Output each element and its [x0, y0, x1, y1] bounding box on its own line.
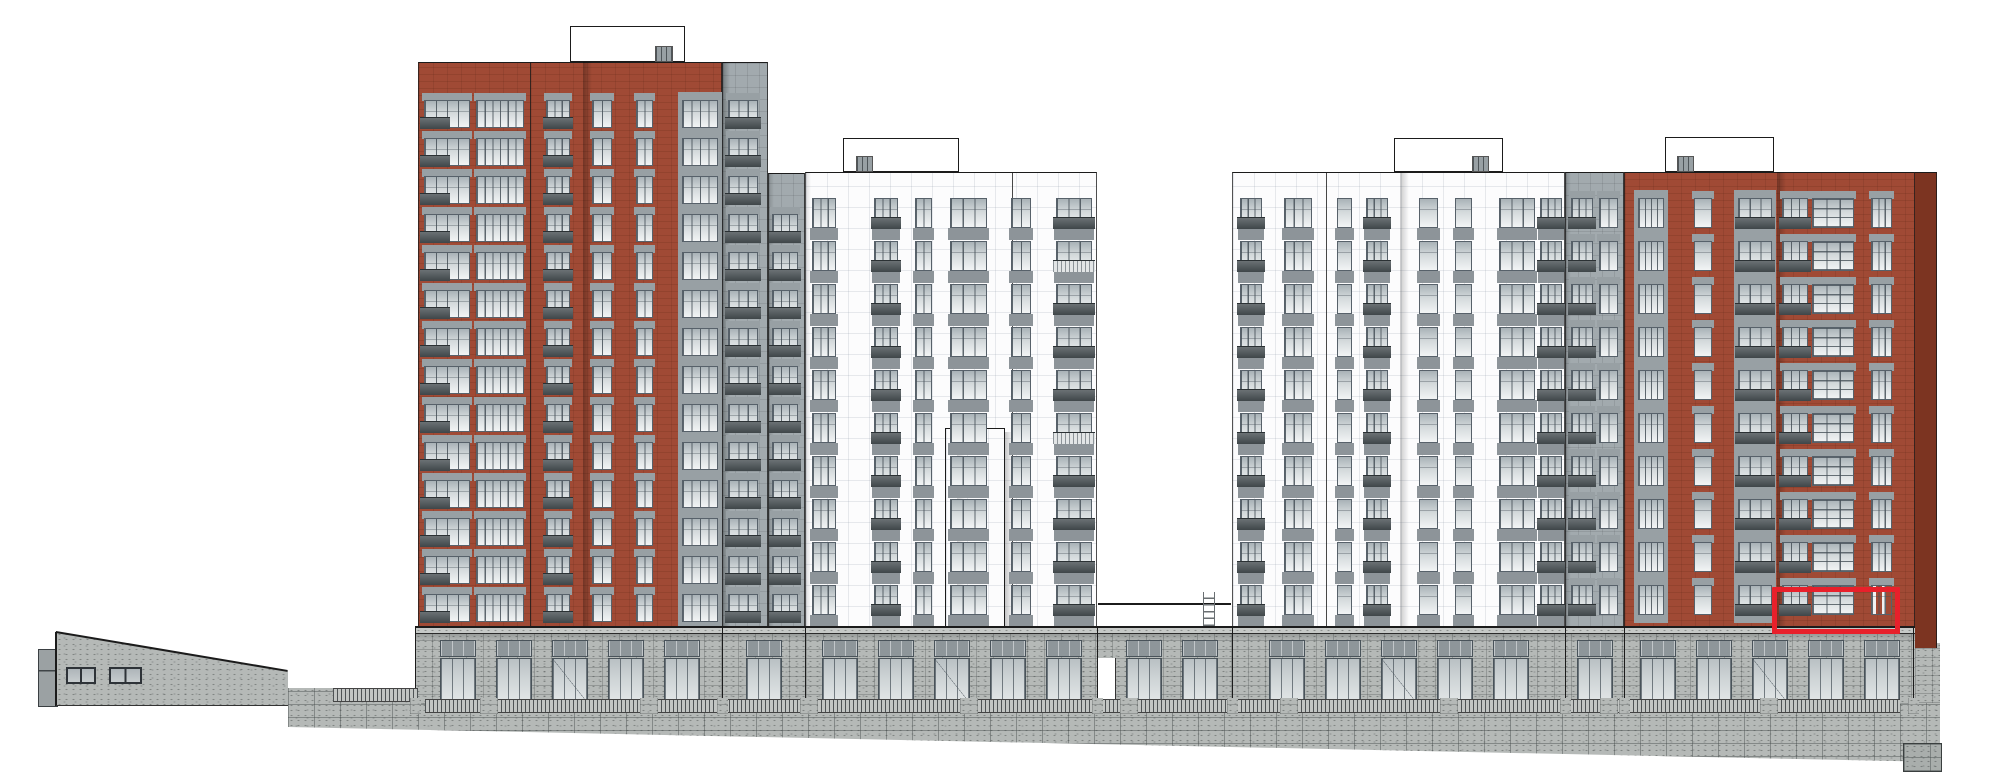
balcony-balustrade — [1537, 518, 1565, 530]
storefront-window[interactable] — [1864, 658, 1900, 703]
apartment-window — [682, 556, 718, 584]
balcony-balustrade — [1779, 217, 1811, 229]
window-spandrel — [948, 572, 989, 584]
window-spandrel — [913, 314, 934, 326]
window-spandrel — [1417, 529, 1440, 541]
apartment-window — [1337, 327, 1352, 357]
balcony-balustrade — [725, 497, 761, 509]
window-spandrel — [1054, 314, 1094, 326]
storefront-clerestory — [1640, 640, 1676, 657]
storefront-clerestory — [1493, 640, 1529, 657]
apartment-window — [476, 442, 524, 470]
railing-pier — [1227, 698, 1238, 714]
balcony-balustrade — [1053, 260, 1095, 272]
apartment-window — [1011, 499, 1031, 529]
apartment-window — [1419, 456, 1438, 486]
podium-boundary-line — [1565, 626, 1566, 704]
apartment-window — [812, 198, 836, 228]
window-spandrel — [1238, 314, 1264, 326]
storefront-window[interactable] — [608, 658, 644, 703]
apartment-window — [476, 404, 524, 432]
railing-pier — [1120, 698, 1138, 714]
storefront-door[interactable] — [934, 658, 970, 703]
balcony-balustrade — [1568, 604, 1596, 616]
balcony-balustrade — [769, 383, 801, 395]
railing-pier — [480, 698, 498, 714]
storefront-window[interactable] — [1269, 658, 1305, 703]
storefront-clerestory — [440, 640, 476, 657]
apartment-window — [476, 594, 524, 622]
apartment-window — [950, 413, 987, 443]
balcony-balustrade — [1735, 432, 1775, 444]
balcony-balustrade — [725, 117, 761, 129]
balcony-balustrade — [769, 497, 801, 509]
balcony-balustrade — [769, 459, 801, 471]
balcony-balustrade — [1363, 518, 1391, 530]
balcony-balustrade — [1779, 303, 1811, 315]
balcony-balustrade — [543, 573, 573, 585]
apartment-window — [812, 284, 836, 314]
window-spandrel — [1282, 400, 1314, 412]
apartment-window — [682, 480, 718, 508]
window-spandrel — [810, 228, 838, 240]
apartment-window — [1284, 413, 1312, 443]
apartment-window — [476, 518, 524, 546]
storefront-window[interactable] — [1182, 658, 1218, 703]
balcony-balustrade — [769, 611, 801, 623]
balcony-balustrade — [1363, 260, 1391, 272]
apartment-window — [1694, 542, 1712, 572]
window-spandrel — [913, 357, 934, 369]
railing-pier — [410, 698, 421, 714]
window-spandrel — [1009, 486, 1033, 498]
apartment-window — [682, 214, 718, 242]
railing-pier — [800, 698, 811, 714]
podium-parapet — [415, 626, 1915, 634]
pavilion-left-edge — [55, 632, 57, 706]
balcony-balustrade — [1363, 561, 1391, 573]
storefront-clerestory — [1381, 640, 1417, 657]
window-spandrel — [810, 271, 838, 283]
apartment-window — [1337, 241, 1352, 271]
apartment-window — [812, 413, 836, 443]
balcony-balustrade — [725, 193, 761, 205]
apartment-window — [592, 518, 612, 546]
window-spandrel — [1335, 357, 1354, 369]
apartment-window — [592, 328, 612, 356]
balcony-balustrade — [725, 611, 761, 623]
balcony-balustrade — [871, 561, 901, 573]
apartment-window — [915, 585, 932, 615]
storefront-window[interactable] — [440, 658, 476, 703]
window-spandrel — [1453, 443, 1474, 455]
window-spandrel — [948, 314, 989, 326]
apartment-window — [636, 518, 653, 546]
balcony-balustrade — [420, 421, 450, 433]
storefront-door[interactable] — [552, 658, 588, 703]
apartment-window — [1011, 241, 1031, 271]
storefront-window[interactable] — [1437, 658, 1473, 703]
podium-boundary-line — [805, 626, 806, 704]
apartment-window — [1812, 327, 1854, 357]
apartment-window — [1455, 198, 1472, 228]
apartment-window — [812, 585, 836, 615]
storefront-window[interactable] — [746, 658, 782, 703]
window-spandrel — [1054, 228, 1094, 240]
apartment-window — [1812, 370, 1854, 400]
balcony-balustrade — [1779, 346, 1811, 358]
apartment-window — [1599, 284, 1618, 314]
balcony-balustrade — [1735, 389, 1775, 401]
window-spandrel — [1335, 529, 1354, 541]
balcony-balustrade — [871, 518, 901, 530]
apartment-window — [1499, 327, 1535, 357]
window-spandrel — [1364, 314, 1390, 326]
storefront-window[interactable] — [878, 658, 914, 703]
apartment-window — [1419, 241, 1438, 271]
apartment-window — [1419, 370, 1438, 400]
balcony-balustrade — [1363, 346, 1391, 358]
storefront-clerestory — [1126, 640, 1162, 657]
window-spandrel — [1417, 486, 1440, 498]
apartment-window — [476, 176, 524, 204]
apartment-window — [915, 198, 932, 228]
balcony-balustrade — [1568, 561, 1596, 573]
window-spandrel — [872, 314, 900, 326]
window-spandrel — [1054, 572, 1094, 584]
window-spandrel — [810, 572, 838, 584]
window-spandrel — [1453, 572, 1474, 584]
balcony-balustrade — [1779, 561, 1811, 573]
balcony-balustrade — [420, 155, 450, 167]
apartment-window — [1337, 198, 1352, 228]
balcony-balustrade — [543, 611, 573, 623]
apartment-window — [1419, 327, 1438, 357]
storefront-window[interactable] — [664, 658, 700, 703]
storefront-clerestory — [1046, 640, 1082, 657]
apartment-window — [915, 413, 932, 443]
balcony-balustrade — [871, 217, 901, 229]
apartment-window — [1694, 284, 1712, 314]
window-spandrel — [1453, 271, 1474, 283]
storefront-clerestory — [878, 640, 914, 657]
storefront-window[interactable] — [1640, 658, 1676, 703]
storefront-clerestory — [1577, 640, 1613, 657]
window-spandrel — [1009, 572, 1033, 584]
apartment-window — [1871, 413, 1892, 443]
apartment-window — [636, 176, 653, 204]
apartment-window — [682, 594, 718, 622]
balcony-balustrade — [1735, 346, 1775, 358]
balcony-balustrade — [1568, 432, 1596, 444]
balcony-balustrade — [871, 389, 901, 401]
apartment-window — [682, 404, 718, 432]
apartment-window — [1419, 585, 1438, 615]
balcony-balustrade — [1053, 303, 1095, 315]
apartment-window — [1871, 456, 1892, 486]
balcony-balustrade — [1537, 217, 1565, 229]
balcony-balustrade — [1735, 475, 1775, 487]
window-spandrel — [948, 400, 989, 412]
apartment-window — [636, 290, 653, 318]
apartment-window — [636, 594, 653, 622]
window-spandrel — [810, 357, 838, 369]
balcony-balustrade — [1237, 346, 1265, 358]
apartment-window — [1011, 585, 1031, 615]
balcony-balustrade — [725, 421, 761, 433]
apartment-window — [1337, 456, 1352, 486]
window-spandrel — [1335, 486, 1354, 498]
balcony-balustrade — [769, 231, 801, 243]
apartment-window — [592, 480, 612, 508]
storefront-window[interactable] — [1046, 658, 1082, 703]
balcony-balustrade — [725, 155, 761, 167]
apartment-window — [1011, 413, 1031, 443]
apartment-window — [1694, 456, 1712, 486]
apartment-window — [1455, 499, 1472, 529]
balcony-balustrade — [420, 459, 450, 471]
apartment-window — [476, 556, 524, 584]
balcony-balustrade — [420, 611, 450, 623]
apartment-window — [592, 138, 612, 166]
window-spandrel — [1238, 486, 1264, 498]
storefront-clerestory — [1182, 640, 1218, 657]
storefront-clerestory — [608, 640, 644, 657]
balcony-balustrade — [543, 497, 573, 509]
railing-pier — [1440, 698, 1458, 714]
balcony-balustrade — [1237, 432, 1265, 444]
apartment-window — [1812, 284, 1854, 314]
apartment-window — [1694, 585, 1712, 615]
apartment-window — [1499, 284, 1535, 314]
apartment-window — [1011, 198, 1031, 228]
apartment-window — [1599, 198, 1618, 228]
apartment-window — [636, 404, 653, 432]
railing-pier — [717, 698, 728, 714]
apartment-window — [1599, 370, 1618, 400]
balcony-balustrade — [543, 155, 573, 167]
balcony-balustrade — [543, 345, 573, 357]
window-spandrel — [1054, 271, 1094, 283]
window-spandrel — [1335, 400, 1354, 412]
apartment-window — [636, 366, 653, 394]
storefront-clerestory — [552, 640, 588, 657]
balcony-balustrade — [420, 345, 450, 357]
storefront-door[interactable] — [1752, 658, 1788, 703]
window-spandrel — [1364, 443, 1390, 455]
window-spandrel — [1453, 486, 1474, 498]
balcony-balustrade — [1537, 389, 1565, 401]
corner-shade — [1400, 172, 1409, 628]
balcony-balustrade — [1735, 518, 1775, 530]
storefront-window[interactable] — [1808, 658, 1844, 703]
balcony-balustrade — [1735, 604, 1775, 616]
window-spandrel — [1009, 357, 1033, 369]
balcony-balustrade — [871, 260, 901, 272]
apartment-window — [1599, 499, 1618, 529]
balcony-balustrade — [1053, 432, 1095, 444]
roof-chimney — [856, 156, 873, 172]
apartment-window — [1284, 585, 1312, 615]
apartment-window — [915, 284, 932, 314]
roof-chimney — [1472, 156, 1489, 172]
storefront-window[interactable] — [1577, 658, 1613, 703]
window-spandrel — [1335, 271, 1354, 283]
balcony-balustrade — [769, 345, 801, 357]
balcony-balustrade — [769, 421, 801, 433]
window-spandrel — [1335, 314, 1354, 326]
balcony-balustrade — [1537, 561, 1565, 573]
window-spandrel — [1364, 486, 1390, 498]
apartment-window — [1337, 499, 1352, 529]
apartment-window — [682, 518, 718, 546]
apartment-window — [1812, 198, 1854, 228]
window-spandrel — [1238, 443, 1264, 455]
apartment-window — [1499, 542, 1535, 572]
window-spandrel — [1538, 529, 1564, 541]
apartment-window — [1638, 499, 1664, 529]
railing-pier — [1092, 698, 1103, 714]
balcony-balustrade — [420, 269, 450, 281]
window-spandrel — [948, 357, 989, 369]
apartment-window — [636, 138, 653, 166]
storefront-clerestory — [1437, 640, 1473, 657]
balcony-balustrade — [543, 459, 573, 471]
apartment-window — [812, 542, 836, 572]
balcony-balustrade — [725, 231, 761, 243]
apartment-window — [915, 542, 932, 572]
window-spandrel — [1238, 400, 1264, 412]
apartment-window — [1419, 542, 1438, 572]
balcony-balustrade — [1779, 432, 1811, 444]
balcony-balustrade — [543, 269, 573, 281]
window-spandrel — [1282, 443, 1314, 455]
apartment-window — [950, 327, 987, 357]
apartment-window — [1011, 284, 1031, 314]
storefront-window[interactable] — [1696, 658, 1732, 703]
apartment-window — [1599, 241, 1618, 271]
balcony-balustrade — [543, 421, 573, 433]
storefront-window[interactable] — [1493, 658, 1529, 703]
balcony-balustrade — [725, 573, 761, 585]
storefront-window[interactable] — [496, 658, 532, 703]
window-spandrel — [872, 400, 900, 412]
apartment-window — [915, 456, 932, 486]
balcony-balustrade — [769, 307, 801, 319]
railing-pier — [1600, 698, 1618, 714]
storefront-window[interactable] — [1126, 658, 1162, 703]
railing-pier — [1760, 698, 1778, 714]
balcony-balustrade — [871, 432, 901, 444]
railing-pier — [1560, 698, 1571, 714]
apartment-window — [950, 241, 987, 271]
apartment-window — [636, 328, 653, 356]
apartment-window — [1284, 542, 1312, 572]
building-elevation-drawing — [0, 0, 2000, 780]
window-spandrel — [872, 572, 900, 584]
window-spandrel — [1453, 529, 1474, 541]
apartment-window — [682, 290, 718, 318]
window-spandrel — [1417, 443, 1440, 455]
balcony-balustrade — [1537, 303, 1565, 315]
balcony-balustrade — [1363, 389, 1391, 401]
window-spandrel — [1497, 486, 1537, 498]
balcony-balustrade — [1779, 475, 1811, 487]
apartment-window — [682, 252, 718, 280]
apartment-window — [915, 370, 932, 400]
apartment-window — [1812, 499, 1854, 529]
balcony-balustrade — [1735, 561, 1775, 573]
apartment-window — [592, 252, 612, 280]
apartment-window — [682, 138, 718, 166]
window-spandrel — [1453, 357, 1474, 369]
window-spandrel — [1417, 314, 1440, 326]
apartment-window — [1499, 241, 1535, 271]
apartment-window — [1871, 499, 1892, 529]
selected-apartment-highlight[interactable] — [1772, 587, 1900, 634]
window-spandrel — [1538, 572, 1564, 584]
apartment-window — [1284, 370, 1312, 400]
apartment-window — [476, 366, 524, 394]
apartment-window — [1599, 585, 1618, 615]
storefront-door[interactable] — [1381, 658, 1417, 703]
railing-pier — [1908, 698, 1919, 714]
window-spandrel — [1538, 357, 1564, 369]
apartment-window — [636, 100, 653, 128]
apartment-window — [1499, 370, 1535, 400]
storefront-window[interactable] — [1325, 658, 1361, 703]
apartment-window — [1419, 284, 1438, 314]
apartment-window — [682, 442, 718, 470]
window-spandrel — [1282, 228, 1314, 240]
apartment-window — [812, 456, 836, 486]
window-spandrel — [1364, 357, 1390, 369]
window-spandrel — [872, 529, 900, 541]
apartment-window — [1638, 370, 1664, 400]
balcony-balustrade — [725, 383, 761, 395]
balcony-balustrade — [1237, 303, 1265, 315]
railing-pier — [1280, 698, 1298, 714]
balcony-balustrade — [1568, 389, 1596, 401]
window-spandrel — [1282, 357, 1314, 369]
apartment-window — [1599, 413, 1618, 443]
balcony-balustrade — [725, 269, 761, 281]
storefront-window[interactable] — [822, 658, 858, 703]
apartment-window — [1694, 499, 1712, 529]
apartment-window — [1812, 413, 1854, 443]
storefront-window[interactable] — [990, 658, 1026, 703]
window-spandrel — [1364, 572, 1390, 584]
apartment-window — [1455, 241, 1472, 271]
apartment-window — [682, 176, 718, 204]
apartment-window — [636, 442, 653, 470]
storefront-clerestory — [934, 640, 970, 657]
apartment-window — [1284, 456, 1312, 486]
balcony-balustrade — [1779, 260, 1811, 272]
apartment-window — [915, 499, 932, 529]
balcony-balustrade — [871, 604, 901, 616]
window-spandrel — [1497, 443, 1537, 455]
apartment-window — [812, 370, 836, 400]
balcony-balustrade — [1568, 303, 1596, 315]
apartment-window — [1284, 241, 1312, 271]
window-spandrel — [948, 443, 989, 455]
balcony-balustrade — [543, 307, 573, 319]
balcony-balustrade — [1568, 518, 1596, 530]
window-spandrel — [1054, 486, 1094, 498]
apartment-window — [950, 499, 987, 529]
podium-boundary-line — [1097, 626, 1098, 704]
